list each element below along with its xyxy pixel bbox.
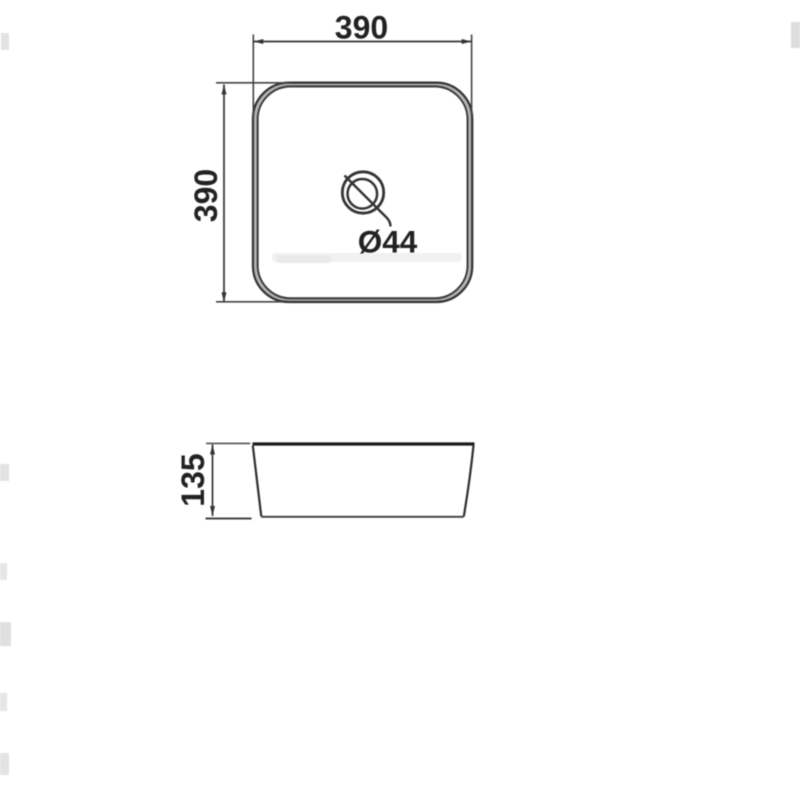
svg-text:390: 390 (335, 10, 388, 46)
svg-text:Ø44: Ø44 (358, 224, 418, 260)
svg-text:135: 135 (175, 453, 211, 506)
svg-text:390: 390 (188, 169, 224, 222)
